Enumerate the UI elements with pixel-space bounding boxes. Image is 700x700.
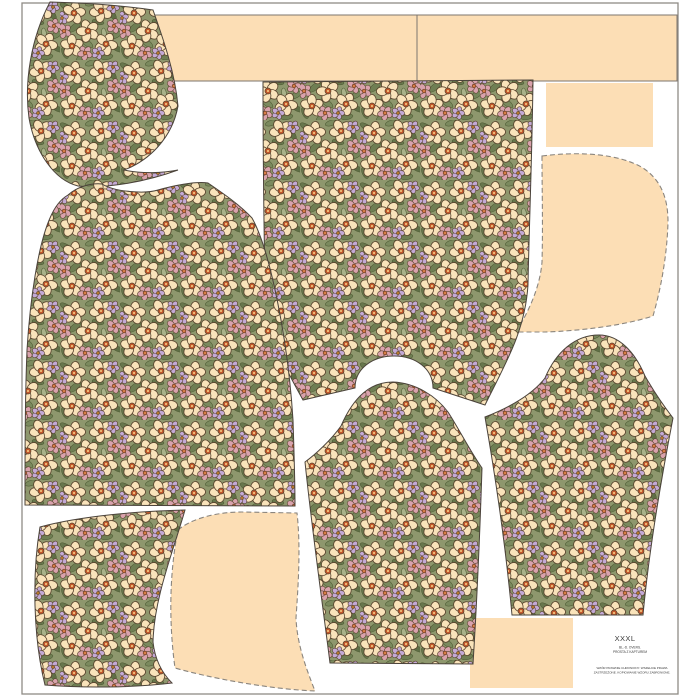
piece-hood-bottom-lining: [171, 512, 315, 691]
style-name-line1: BL.-D. OVERS.: [619, 646, 641, 650]
piece-hood-right-lining: [516, 154, 668, 332]
piece-strip-top-right: [417, 15, 677, 81]
fabric-panel: XXXL BL.-D. OVERS. PROSTA Z KAPTUREM WZÓ…: [0, 0, 700, 700]
pattern-panel-canvas: XXXL BL.-D. OVERS. PROSTA Z KAPTUREM WZÓ…: [0, 0, 700, 700]
piece-front-body: [25, 183, 295, 506]
piece-hood-bottom-left: [35, 510, 185, 687]
piece-rect-top-right: [546, 83, 653, 147]
piece-strip-top-left: [154, 15, 417, 81]
legal-text-line2: ZASTRZEŻONE. KOPIOWANIE WZORU ZABRONIONE…: [594, 670, 671, 675]
size-label-block: XXXL BL.-D. OVERS. PROSTA Z KAPTUREM WZÓ…: [594, 634, 671, 675]
piece-back-body: [263, 80, 533, 405]
piece-rect-bottom-right: [470, 618, 573, 688]
piece-sleeve-right: [485, 335, 673, 615]
size-label: XXXL: [615, 634, 636, 643]
style-name-line2: PROSTA Z KAPTUREM: [613, 650, 647, 654]
piece-sleeve-center: [305, 382, 482, 664]
piece-hood-top-left: [27, 2, 178, 187]
legal-text-line1: WZÓR PRAWNIE CHRONIONY. WSZELKIE PRAWA: [596, 665, 667, 670]
